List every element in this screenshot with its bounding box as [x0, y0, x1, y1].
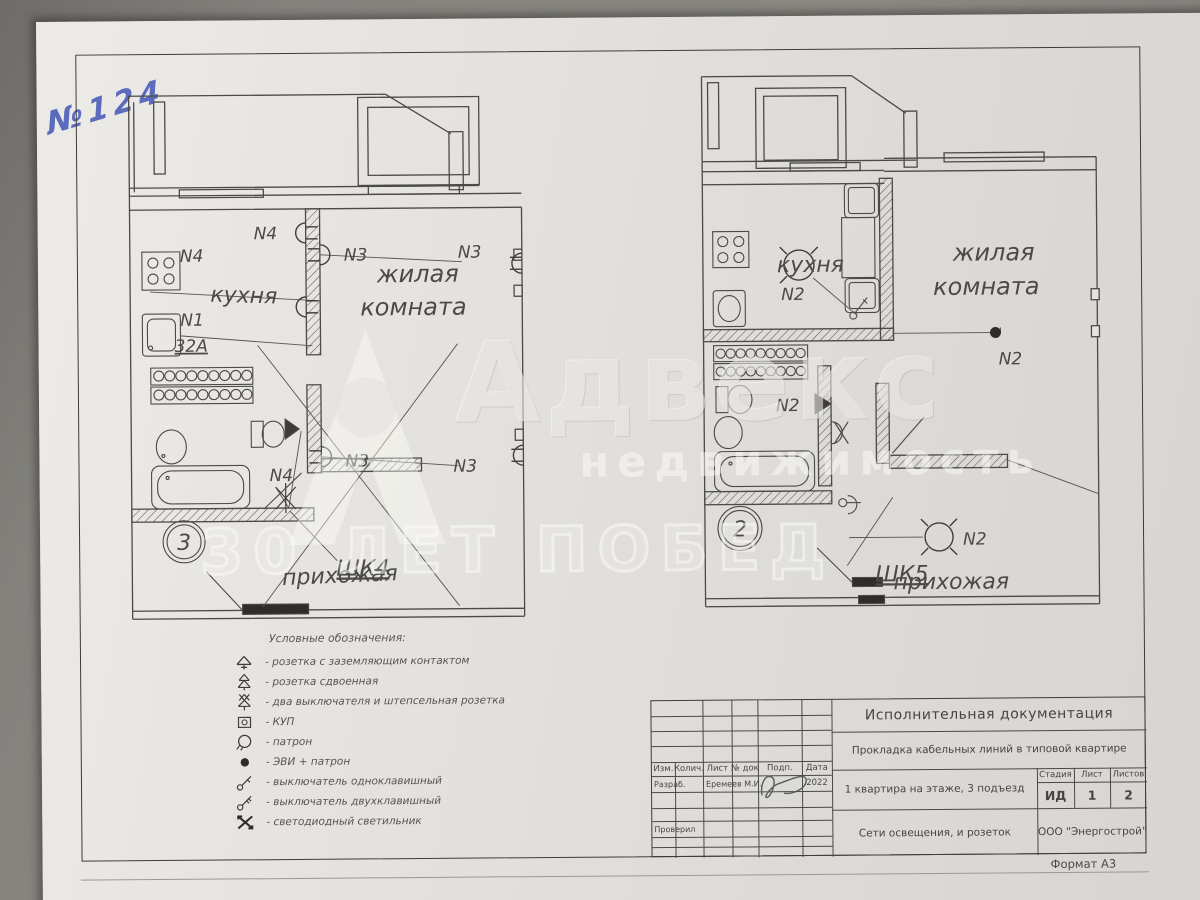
company-name: ООО "Энергострой" — [1037, 807, 1147, 855]
label-n1: N1 — [180, 311, 204, 331]
socket-grounded-icon — [231, 652, 257, 672]
evi-lamp-icon — [232, 752, 258, 772]
room-label-living-2: комната — [933, 272, 1040, 301]
switch-double-icon — [232, 792, 258, 812]
room-label-kitchen: кухня — [777, 253, 844, 279]
legend-item: - выключатель двухклавишный — [232, 790, 502, 812]
label-n3-d: N3 — [453, 457, 477, 477]
row-razrab: Разраб. — [652, 776, 675, 792]
title-block: Изм. Колич. Лист № док Подп. Дата Разраб… — [650, 696, 1146, 857]
label-n2-kitchen: N2 — [781, 285, 805, 305]
photographed-sheet: №124 — [36, 13, 1200, 900]
doc-type: Исполнительная документация — [831, 697, 1146, 731]
signature-scribble — [750, 755, 820, 804]
led-light-icon — [232, 812, 258, 832]
stage-value: ИД — [1037, 782, 1074, 808]
row-proveril: Проверил — [652, 821, 692, 837]
label-n2-hall: N2 — [963, 530, 987, 550]
label-n2-bath: N2 — [776, 396, 800, 416]
switch-single-icon — [232, 772, 258, 792]
legend-item: - розетка сдвоенная — [231, 670, 501, 692]
sheet-title: Сети освещения, и розеток — [832, 808, 1037, 857]
kup-icon — [231, 712, 257, 732]
right-plan-wiring — [813, 276, 1099, 566]
switches-socket-icon — [231, 692, 257, 712]
room-label-hall: прихожая — [893, 569, 1009, 595]
sheets-value: 2 — [1110, 781, 1147, 807]
legend-item: - выключатель одноклавишный — [232, 770, 502, 792]
label-n3-b: N3 — [458, 243, 482, 263]
label-n3-a: N3 — [344, 245, 368, 265]
col-list: Лист — [703, 762, 732, 776]
sheets-label: Листов — [1110, 767, 1147, 781]
floor-plan-left: N4 кухня N1 32A N4 N3 N3 жилая комната N… — [120, 81, 534, 629]
room-label-living-2: комната — [360, 293, 467, 322]
legend-item: - два выключателя и штепсельная розетка — [231, 690, 501, 712]
legend-item: - светодиодный светильник — [232, 810, 502, 832]
room-number-badge: 3 — [177, 531, 191, 556]
room-label-hall: прихожая — [282, 561, 399, 591]
legend-item: - ЭВИ + патрон — [232, 750, 502, 772]
sheet-label: Лист — [1074, 768, 1110, 782]
label-n4-light: N4 — [269, 466, 293, 486]
label-n4-stove: N4 — [180, 247, 204, 267]
sheet-value: 1 — [1074, 782, 1110, 808]
doc-title: Прокладка кабельных линий в типовой квар… — [832, 729, 1147, 769]
label-n4-wall: N4 — [254, 224, 278, 244]
sheet-bottom-edge — [81, 871, 1149, 880]
legend: Условные обозначения: - розетка с заземл… — [231, 630, 503, 832]
format-label: Формат А3 — [1051, 857, 1117, 872]
lamp-holder-icon — [232, 732, 258, 752]
label-32a: 32A — [174, 337, 207, 357]
legend-item: - КУП — [231, 710, 501, 732]
col-kol: Колич. — [675, 762, 703, 776]
label-n2-living: N2 — [999, 349, 1023, 369]
room-label-kitchen: кухня — [210, 283, 278, 310]
socket-double-icon — [231, 672, 257, 692]
living-junction-dot — [990, 327, 1001, 338]
col-izm: Изм. — [652, 762, 675, 776]
legend-item: - патрон — [232, 730, 502, 752]
label-n3-c: N3 — [345, 451, 369, 471]
floor-plan-right: кухня N2 жилая комната N2 N2 N2 2 ШК5 пр… — [693, 64, 1107, 617]
legend-item: - розетка с заземляющим контактом — [231, 650, 501, 672]
object-name: 1 квартира на этаже, 3 подъезд — [832, 768, 1037, 810]
room-label-living-1: жилая — [376, 260, 459, 289]
room-label-living-1: жилая — [952, 238, 1035, 267]
room-number-badge: 2 — [733, 517, 747, 542]
legend-title: Условные обозначения: — [269, 630, 501, 645]
hall-lamp-symbol — [921, 519, 957, 555]
stage-label: Стадия — [1037, 768, 1074, 782]
